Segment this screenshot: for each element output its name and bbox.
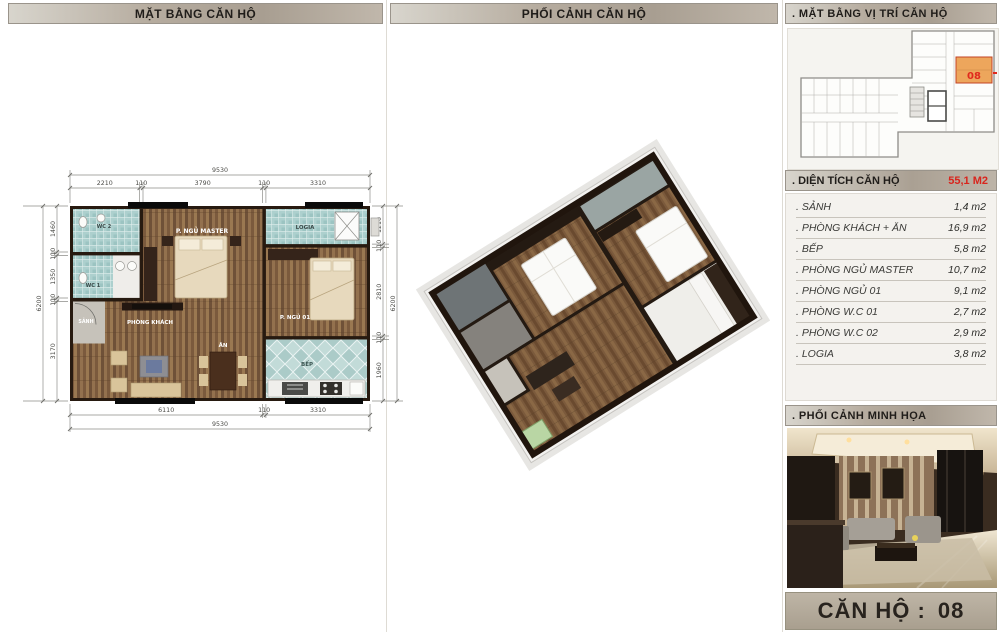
area-row-label: . LOGIA bbox=[796, 348, 834, 360]
dim-bottom-2: 3310 bbox=[310, 407, 326, 414]
area-header: . DIỆN TÍCH CĂN HỘ 55,1 M2 bbox=[785, 170, 997, 191]
label-wc1: WC 1 bbox=[86, 283, 101, 289]
interior-photo bbox=[787, 428, 997, 588]
floor-plan-title: MẶT BẰNG CĂN HỘ bbox=[135, 7, 256, 21]
area-row-label: . BẾP bbox=[796, 243, 823, 255]
dim-top-0: 2210 bbox=[97, 180, 113, 187]
area-row: . PHÒNG NGỦ 01 9,1 m2 bbox=[796, 281, 986, 302]
illustration-title: . PHỐI CẢNH MINH HỌA bbox=[792, 410, 927, 422]
area-row-value: 5,8 m2 bbox=[954, 243, 986, 255]
dim-top-1: 110 bbox=[135, 180, 147, 187]
area-row-label: . PHÒNG W.C 01 bbox=[796, 306, 878, 318]
dim-bottom-1: 110 bbox=[258, 407, 270, 414]
area-row-value: 9,1 m2 bbox=[954, 285, 986, 297]
panel-header-illustration: . PHỐI CẢNH MINH HỌA bbox=[785, 405, 997, 426]
label-living: PHÒNG KHÁCH bbox=[127, 319, 173, 326]
kitchen-counter bbox=[268, 380, 365, 397]
dim-left-3: 110 bbox=[50, 294, 57, 306]
dim-top-4: 3310 bbox=[310, 180, 326, 187]
area-row: . PHÒNG W.C 02 2,9 m2 bbox=[796, 323, 986, 344]
unit-number-bar: CĂN HỘ : 08 bbox=[785, 592, 997, 630]
keyplan-drawing: 08 bbox=[788, 29, 998, 169]
panel-header-perspective: PHỐI CẢNH CĂN HỘ bbox=[390, 3, 778, 24]
keyplan-box: 08 bbox=[787, 28, 999, 170]
panel-header-floor-plan: MẶT BẰNG CĂN HỘ bbox=[8, 3, 383, 24]
area-row-value: 3,8 m2 bbox=[954, 348, 986, 360]
area-total: 55,1 M2 bbox=[948, 175, 988, 187]
area-row: . PHÒNG NGỦ MASTER 10,7 m2 bbox=[796, 260, 986, 281]
unit-number: 08 bbox=[938, 598, 964, 624]
logia-washer bbox=[335, 212, 379, 240]
dim-left-2: 1350 bbox=[50, 269, 57, 285]
apartment-3d bbox=[416, 139, 770, 471]
area-row-label: . PHÒNG NGỦ MASTER bbox=[796, 264, 913, 276]
dim-bottom-0: 6110 bbox=[158, 407, 174, 414]
perspective-drawing bbox=[388, 55, 783, 545]
dim-top-3: 110 bbox=[258, 180, 270, 187]
label-dining: ĂN bbox=[219, 342, 228, 349]
area-row: . LOGIA 3,8 m2 bbox=[796, 344, 986, 365]
keyplan-unit-number: 08 bbox=[967, 71, 981, 82]
area-row-label: . PHÒNG W.C 02 bbox=[796, 327, 878, 339]
area-row-value: 16,9 m2 bbox=[948, 222, 986, 234]
area-row-value: 10,7 m2 bbox=[948, 264, 986, 276]
dim-right-3: 110 bbox=[376, 332, 383, 344]
area-row-label: . SẢNH bbox=[796, 201, 831, 213]
unit-label: CĂN HỘ : bbox=[818, 598, 926, 624]
label-wc2: WC 2 bbox=[97, 224, 112, 230]
dim-top-total: 9530 bbox=[212, 167, 228, 174]
dim-bottom-total: 9530 bbox=[212, 421, 228, 428]
area-row-value: 2,9 m2 bbox=[954, 327, 986, 339]
panel-header-location: . MẶT BẰNG VỊ TRÍ CĂN HỘ bbox=[785, 3, 997, 24]
core-block bbox=[910, 87, 946, 121]
location-title: . MẶT BẰNG VỊ TRÍ CĂN HỘ bbox=[792, 8, 948, 20]
perspective-title: PHỐI CẢNH CĂN HỘ bbox=[522, 7, 646, 21]
dim-left-total: 6200 bbox=[36, 295, 43, 311]
building-outline bbox=[801, 31, 994, 157]
room-wc2 bbox=[73, 209, 140, 252]
vanity-area bbox=[113, 255, 140, 298]
dim-right-1: 110 bbox=[376, 240, 383, 252]
area-row: . PHÒNG W.C 01 2,7 m2 bbox=[796, 302, 986, 323]
label-kitchen: BẾP bbox=[301, 360, 313, 368]
area-row-value: 1,4 m2 bbox=[954, 201, 986, 213]
dim-left-4: 3170 bbox=[50, 343, 57, 359]
brochure-sheet: MẶT BẰNG CĂN HỘ PHỐI CẢNH CĂN HỘ . MẶT B… bbox=[0, 0, 1000, 632]
area-title: . DIỆN TÍCH CĂN HỘ bbox=[792, 175, 900, 187]
dim-right-4: 1960 bbox=[376, 362, 383, 378]
label-logia: LOGIA bbox=[296, 225, 316, 231]
floor-plan-drawing: 9530 2210 110 3790 110 3310 6110 110 331… bbox=[5, 140, 405, 480]
dim-left-0: 1460 bbox=[50, 221, 57, 237]
dim-right-2: 2810 bbox=[376, 284, 383, 300]
dim-left-1: 110 bbox=[50, 248, 57, 260]
area-row-label: . PHÒNG NGỦ 01 bbox=[796, 285, 881, 297]
area-row-value: 2,7 m2 bbox=[954, 306, 986, 318]
area-row: . BẾP 5,8 m2 bbox=[796, 239, 986, 260]
label-bedroom01: P. NGỦ 01 bbox=[280, 313, 310, 321]
area-row: . SẢNH 1,4 m2 bbox=[796, 197, 986, 218]
area-row-label: . PHÒNG KHÁCH + ĂN bbox=[796, 222, 907, 234]
label-master: P. NGỦ MASTER bbox=[176, 227, 229, 235]
area-table: . SẢNH 1,4 m2 . PHÒNG KHÁCH + ĂN 16,9 m2… bbox=[785, 193, 997, 401]
dim-top-2: 3790 bbox=[195, 180, 211, 187]
area-row: . PHÒNG KHÁCH + ĂN 16,9 m2 bbox=[796, 218, 986, 239]
